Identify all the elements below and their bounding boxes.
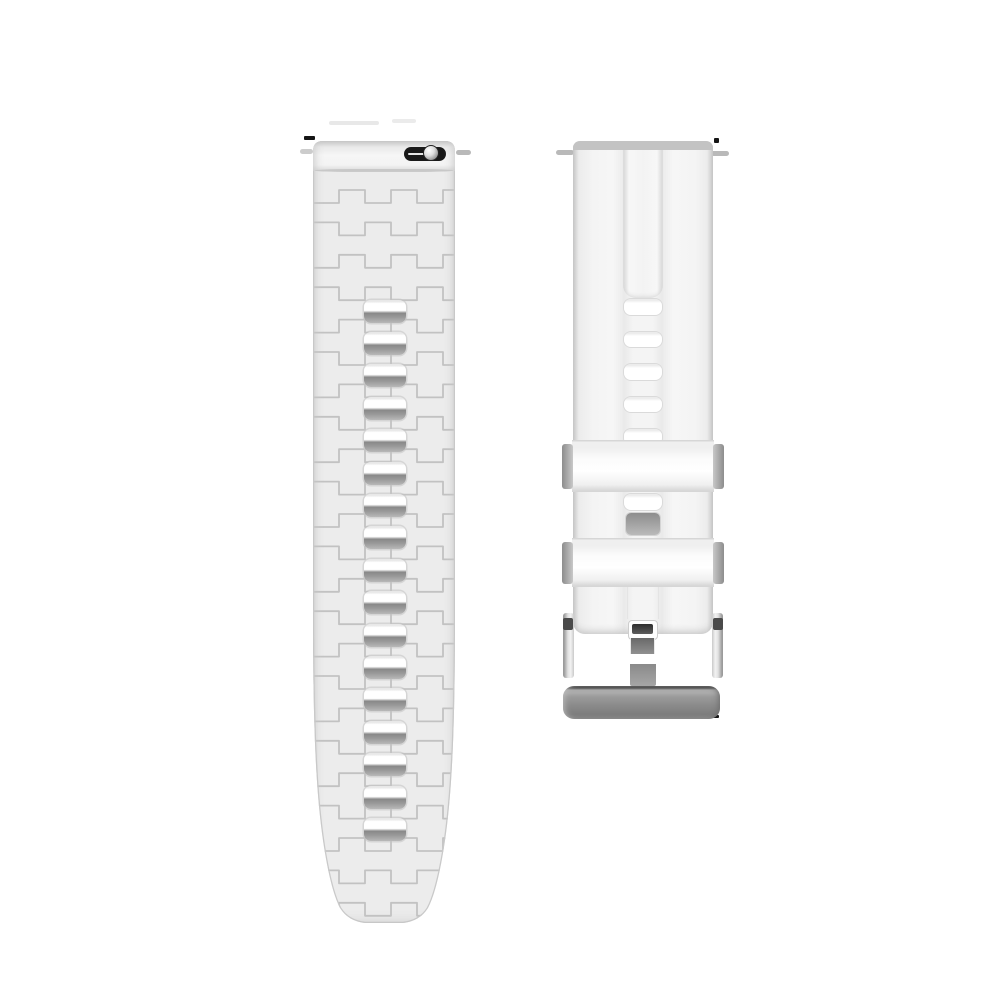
adjustment-hole — [364, 559, 406, 582]
spring-bar-tip-right — [456, 150, 471, 155]
buckle-tang-upper — [630, 638, 655, 654]
shadowed-hole — [626, 513, 660, 535]
buckle-post-pivot — [563, 618, 573, 630]
keeper-tab-left — [562, 542, 573, 584]
adjustment-hole — [364, 721, 406, 744]
keeper-loop-lower — [562, 538, 724, 587]
adjustment-hole — [364, 429, 406, 452]
adjustment-hole — [364, 462, 406, 485]
strap-adjustment-band — [313, 141, 455, 927]
strap-buckle-band — [573, 141, 713, 719]
buckle-tang-lower — [630, 664, 656, 686]
adjustment-hole — [364, 786, 406, 809]
adjustment-hole — [364, 753, 406, 776]
spring-bar-tip-left — [300, 149, 313, 154]
adjustment-hole — [364, 526, 406, 549]
strap-hole — [624, 332, 662, 348]
keeper-body — [572, 440, 714, 492]
keeper-loop-upper — [562, 440, 724, 492]
buckle-post-left — [563, 613, 574, 678]
adjustment-hole — [364, 591, 406, 614]
tang-tip-shadow — [632, 624, 653, 634]
tang-tab — [628, 620, 658, 640]
adjustment-hole — [364, 300, 406, 323]
adjustment-hole — [364, 624, 406, 647]
keeper-body — [572, 538, 714, 587]
buckle-post-right — [712, 613, 723, 678]
adjustment-hole — [364, 332, 406, 355]
product-photo — [0, 0, 1000, 1000]
spring-bar-tip-left — [556, 150, 574, 155]
spring-bar-tip-right — [711, 151, 729, 156]
strap-hole — [624, 299, 662, 315]
adjustment-hole — [364, 397, 406, 420]
adjustment-holes — [313, 141, 455, 927]
photo-artifact — [304, 136, 315, 140]
photo-artifact — [714, 138, 719, 143]
buckle-post-pivot — [713, 618, 723, 630]
adjustment-hole — [364, 656, 406, 679]
keeper-tab-right — [713, 444, 724, 489]
photo-smudge — [392, 119, 416, 123]
strap-hole — [624, 397, 662, 413]
center-slot — [627, 587, 659, 619]
photo-smudge — [329, 121, 379, 125]
strap-hole — [624, 494, 662, 510]
adjustment-hole — [364, 364, 406, 387]
buckle-bar — [563, 686, 720, 719]
keeper-tab-right — [713, 542, 724, 584]
adjustment-hole — [364, 688, 406, 711]
strap-hole — [624, 364, 662, 380]
keeper-tab-left — [562, 444, 573, 489]
adjustment-hole — [364, 494, 406, 517]
adjustment-hole — [364, 818, 406, 841]
